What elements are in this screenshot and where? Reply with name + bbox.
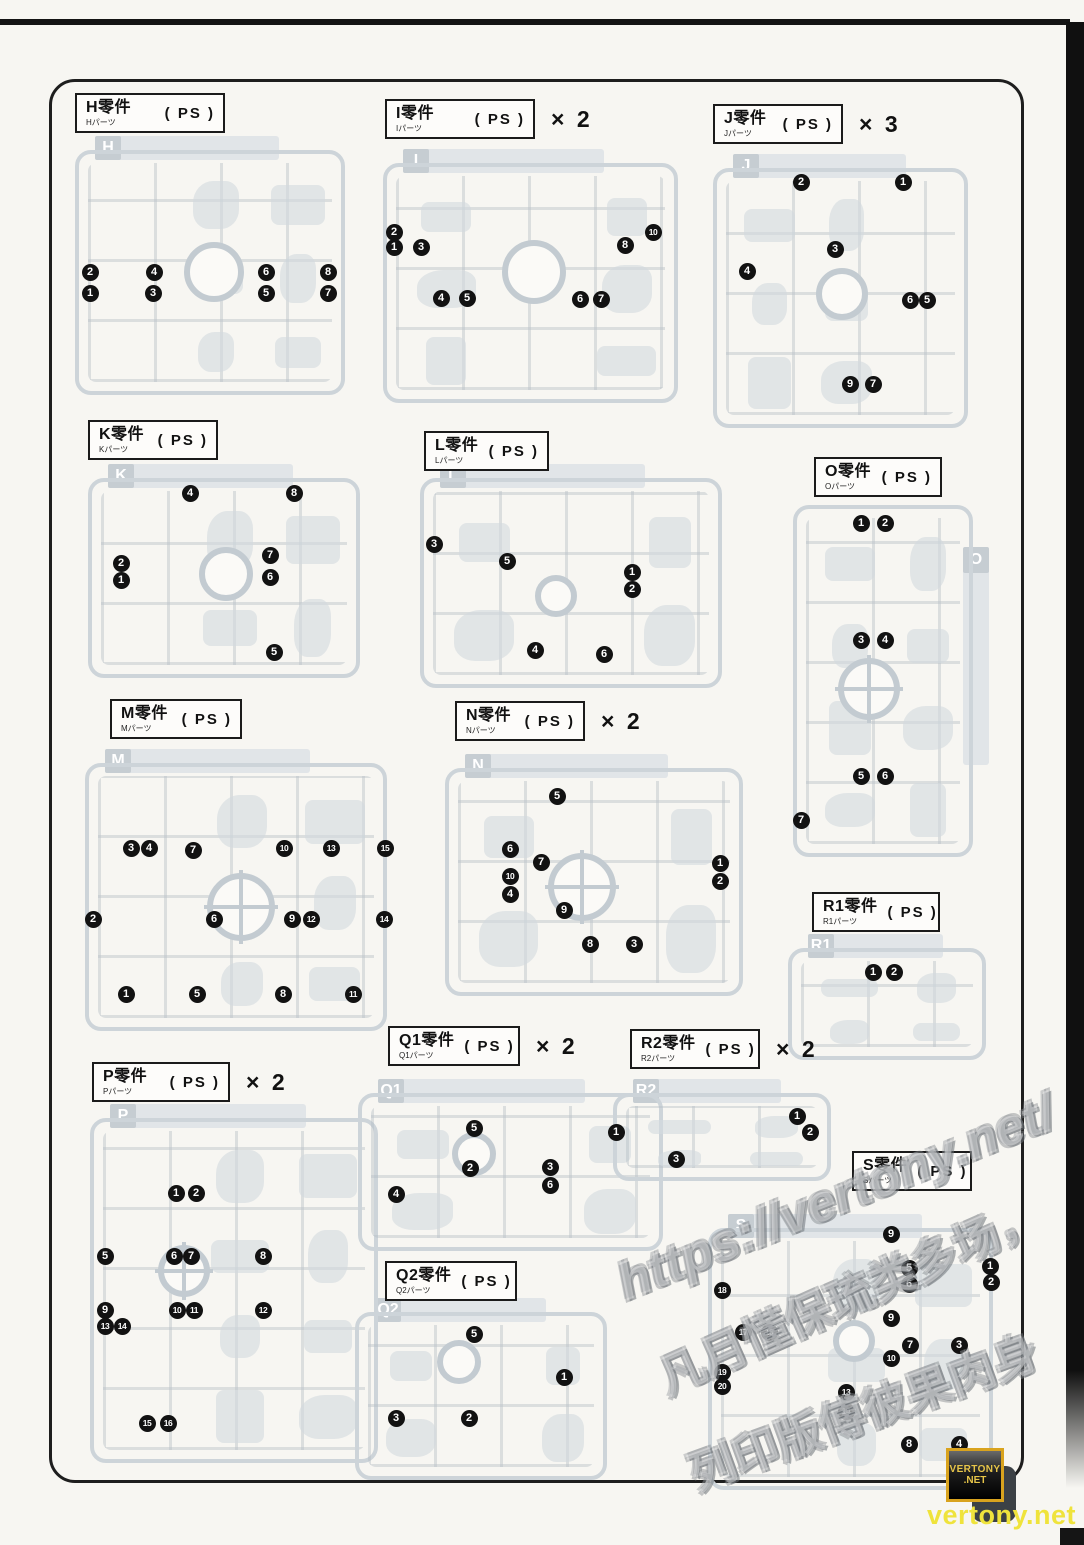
part-number-N-10: 10 (502, 868, 519, 885)
part-number-I-8: 8 (617, 237, 634, 254)
part-shape (607, 198, 648, 237)
part-number-P-8: 8 (255, 1248, 272, 1265)
part-label-text-N: N零件Nパーツ (466, 708, 511, 735)
part-shape (286, 516, 340, 564)
part-label-sub-P: Pパーツ (103, 1088, 147, 1096)
part-shape (304, 1320, 352, 1354)
part-label-text-Q2: Q2零件Q2パーツ (396, 1268, 451, 1295)
part-label-M: M零件Mパーツ( PS ) (110, 699, 242, 739)
runner-M: M347101315269121415811 (85, 763, 387, 1031)
part-label-text-K: K零件Kパーツ (99, 427, 144, 454)
part-number-H-8: 8 (320, 264, 337, 281)
part-number-R1-2: 2 (886, 964, 903, 981)
part-number-H-4: 4 (146, 264, 163, 281)
part-label-sub-R2: R2パーツ (641, 1055, 695, 1063)
part-number-K-2: 2 (113, 555, 130, 572)
part-number-Q1-5: 5 (466, 1120, 483, 1137)
part-label-title-K: K零件 (99, 427, 144, 443)
part-shape (275, 337, 320, 368)
part-shape (830, 1020, 869, 1044)
part-number-P-9: 9 (97, 1302, 114, 1319)
part-shape (648, 1120, 711, 1133)
part-number-N-3: 3 (626, 936, 643, 953)
runner-center-ring-L (535, 575, 577, 617)
part-number-K-5: 5 (266, 644, 283, 661)
part-number-P-13: 13 (97, 1318, 114, 1335)
part-shape (193, 181, 238, 230)
part-label-row-Q2: Q2零件Q2パーツ( PS ) (385, 1261, 517, 1301)
part-shape (308, 1230, 348, 1283)
vertony-badge-text: VERTONY (950, 1464, 1001, 1475)
part-number-J-9: 9 (842, 376, 859, 393)
part-label-row-M: M零件Mパーツ( PS ) (110, 699, 242, 739)
part-number-N-6: 6 (502, 841, 519, 858)
part-label-material-L: ( PS ) (479, 443, 539, 460)
part-number-M-11: 11 (345, 986, 362, 1003)
runner-R1: R112 (788, 948, 986, 1060)
part-label-sub-Q2: Q2パーツ (396, 1287, 451, 1295)
part-number-K-8: 8 (286, 485, 303, 502)
part-label-sub-Q1: Q1パーツ (399, 1052, 454, 1060)
part-number-J-6: 6 (902, 292, 919, 309)
part-label-sub-K: Kパーツ (99, 446, 144, 454)
part-number-K-4: 4 (182, 485, 199, 502)
runner-center-ring-O (838, 658, 900, 720)
part-label-material-M: ( PS ) (172, 711, 232, 728)
part-number-I-1: 1 (386, 239, 403, 256)
runner-K: K4821765 (88, 478, 360, 678)
part-shape (597, 346, 656, 376)
part-label-row-H: H零件Hパーツ( PS ) (75, 93, 225, 133)
part-number-M-15: 15 (377, 840, 394, 857)
part-label-row-Q1: Q1零件Q1パーツ( PS )× 2 (388, 1026, 578, 1066)
part-number-L-2: 2 (624, 581, 641, 598)
part-label-sub-M: Mパーツ (121, 725, 168, 733)
part-number-P-1: 1 (168, 1185, 185, 1202)
part-shape (421, 202, 471, 232)
part-number-S-8: 8 (901, 1436, 918, 1453)
runner-center-ring-Q2 (437, 1340, 481, 1384)
part-number-M-5: 5 (189, 986, 206, 1003)
part-number-P-5: 5 (97, 1248, 114, 1265)
part-shape (314, 876, 356, 930)
part-shape (280, 254, 317, 303)
part-number-I-2: 2 (386, 224, 403, 241)
part-label-material-Q2: ( PS ) (451, 1273, 511, 1290)
part-shape (649, 517, 691, 567)
part-label-I: I零件Iパーツ( PS ) (385, 99, 535, 139)
part-number-M-10: 10 (276, 840, 293, 857)
part-label-text-H: H零件Hパーツ (86, 100, 131, 127)
part-number-Q2-3: 3 (388, 1410, 405, 1427)
part-number-I-4: 4 (433, 290, 450, 307)
part-shape (748, 357, 790, 409)
part-label-material-H: ( PS ) (155, 105, 215, 122)
part-label-row-N: N零件Nパーツ( PS )× 2 (455, 701, 643, 741)
part-multiplier-J: × 3 (859, 111, 901, 138)
part-shape (666, 905, 716, 972)
part-number-Q2-1: 1 (556, 1369, 573, 1386)
part-number-P-7: 7 (183, 1248, 200, 1265)
part-shape (910, 537, 945, 591)
part-shape (917, 973, 956, 1002)
scan-edge-right (1066, 22, 1084, 1488)
part-number-R2-2: 2 (802, 1124, 819, 1141)
part-label-text-Q1: Q1零件Q1パーツ (399, 1033, 454, 1060)
part-label-sub-I: Iパーツ (396, 125, 434, 133)
part-shape (671, 809, 712, 864)
runner-center-ring-H (184, 242, 244, 302)
part-number-J-5: 5 (919, 292, 936, 309)
part-shape (305, 800, 365, 844)
part-label-text-L: L零件Lパーツ (435, 438, 478, 465)
part-shape (217, 795, 268, 849)
part-label-material-I: ( PS ) (465, 111, 525, 128)
part-number-P-16: 16 (160, 1415, 177, 1432)
part-shape (542, 1414, 584, 1462)
part-number-J-3: 3 (827, 241, 844, 258)
part-number-P-10: 10 (169, 1302, 186, 1319)
part-multiplier-Q1: × 2 (536, 1033, 578, 1060)
part-number-L-6: 6 (596, 646, 613, 663)
part-shape (910, 783, 945, 837)
part-label-O: O零件Oパーツ( PS ) (814, 457, 942, 497)
part-label-row-J: J零件Jパーツ( PS )× 3 (713, 104, 901, 144)
part-multiplier-I: × 2 (551, 106, 593, 133)
part-number-O-1: 1 (853, 515, 870, 532)
part-label-row-R1: R1零件R1パーツ( PS ) (812, 892, 940, 932)
part-shape (390, 1351, 432, 1381)
part-label-title-O: O零件 (825, 464, 871, 480)
part-number-J-4: 4 (739, 263, 756, 280)
part-number-P-12: 12 (255, 1302, 272, 1319)
part-label-material-J: ( PS ) (773, 116, 833, 133)
part-number-I-6: 6 (572, 291, 589, 308)
part-label-title-R2: R2零件 (641, 1036, 695, 1052)
part-number-M-1: 1 (118, 986, 135, 1003)
part-label-R1: R1零件R1パーツ( PS ) (812, 892, 940, 932)
part-number-L-5: 5 (499, 553, 516, 570)
part-number-Q1-3: 3 (542, 1159, 559, 1176)
part-number-O-6: 6 (877, 768, 894, 785)
part-label-text-O: O零件Oパーツ (825, 464, 871, 491)
part-shape (203, 610, 257, 647)
part-label-text-M: M零件Mパーツ (121, 706, 168, 733)
part-label-H: H零件Hパーツ( PS ) (75, 93, 225, 133)
part-number-I-10: 10 (645, 224, 662, 241)
part-number-Q2-5: 5 (466, 1326, 483, 1343)
part-number-I-5: 5 (459, 290, 476, 307)
part-label-sub-R1: R1パーツ (823, 918, 877, 926)
part-number-M-8: 8 (275, 986, 292, 1003)
part-label-R2: R2零件R2パーツ( PS ) (630, 1029, 760, 1069)
runner-center-ring-I (502, 240, 566, 304)
part-number-I-7: 7 (593, 291, 610, 308)
part-number-O-4: 4 (877, 632, 894, 649)
part-shape (752, 283, 787, 325)
part-label-text-R2: R2零件R2パーツ (641, 1036, 695, 1063)
part-shape (602, 265, 652, 313)
part-shape (198, 332, 235, 372)
runner-I: I2131084567 (383, 163, 678, 403)
part-label-material-P: ( PS ) (160, 1074, 220, 1091)
runner-O: O1234567 (793, 505, 973, 857)
part-shape (825, 547, 876, 581)
part-number-N-7: 7 (533, 854, 550, 871)
part-number-Q1-6: 6 (542, 1177, 559, 1194)
part-number-O-7: 7 (793, 812, 810, 829)
part-number-N-2: 2 (712, 873, 729, 890)
part-shape (913, 1023, 961, 1041)
part-label-title-P: P零件 (103, 1069, 147, 1085)
part-number-M-7: 7 (185, 842, 202, 859)
part-shape (584, 1189, 636, 1233)
runner-center-ring-J (816, 268, 868, 320)
part-number-P-6: 6 (166, 1248, 183, 1265)
part-label-material-N: ( PS ) (515, 713, 575, 730)
part-multiplier-R2: × 2 (776, 1036, 818, 1063)
part-number-M-3: 3 (123, 840, 140, 857)
part-shape (744, 209, 794, 242)
part-number-Q2-2: 2 (461, 1410, 478, 1427)
part-shape (644, 605, 695, 666)
part-label-row-K: K零件Kパーツ( PS ) (88, 420, 218, 460)
part-number-O-5: 5 (853, 768, 870, 785)
part-label-title-J: J零件 (724, 111, 766, 127)
part-number-N-1: 1 (712, 855, 729, 872)
part-label-material-R1: ( PS ) (877, 904, 937, 921)
part-number-M-14: 14 (376, 911, 393, 928)
part-number-Q1-2: 2 (462, 1160, 479, 1177)
part-shape (479, 911, 538, 966)
part-number-I-3: 3 (413, 239, 430, 256)
part-label-row-O: O零件Oパーツ( PS ) (814, 457, 942, 497)
part-number-M-6: 6 (206, 911, 223, 928)
part-label-L: L零件Lパーツ( PS ) (424, 431, 549, 471)
scan-edge-top (0, 19, 1070, 25)
part-shape (821, 979, 878, 997)
part-number-L-1: 1 (624, 564, 641, 581)
part-label-title-I: I零件 (396, 106, 434, 122)
part-label-title-Q1: Q1零件 (399, 1033, 454, 1049)
part-shape (271, 185, 324, 225)
part-number-P-14: 14 (114, 1318, 131, 1335)
part-label-title-R1: R1零件 (823, 899, 877, 915)
part-label-sub-O: Oパーツ (825, 483, 871, 491)
part-label-title-Q2: Q2零件 (396, 1268, 451, 1284)
part-number-J-1: 1 (895, 174, 912, 191)
part-shape (397, 1130, 449, 1158)
part-number-R2-1: 1 (789, 1108, 806, 1125)
runner-N: N56710412983 (445, 768, 743, 996)
part-number-H-7: 7 (320, 285, 337, 302)
part-number-J-2: 2 (793, 174, 810, 191)
part-label-text-J: J零件Jパーツ (724, 111, 766, 138)
part-shape (221, 962, 263, 1006)
manual-page: H零件Hパーツ( PS )H24681357I零件Iパーツ( PS )× 2I2… (0, 0, 1084, 1545)
vertony-badge-text-2: .NET (964, 1475, 987, 1486)
part-number-P-11: 11 (186, 1302, 203, 1319)
part-shape (750, 1152, 803, 1165)
part-shape (299, 1154, 356, 1197)
part-number-N-5: 5 (549, 788, 566, 805)
part-label-material-R2: ( PS ) (695, 1041, 755, 1058)
part-label-sub-H: Hパーツ (86, 119, 131, 127)
part-label-row-P: P零件Pパーツ( PS )× 2 (92, 1062, 288, 1102)
runner-center-ring-M (207, 873, 275, 941)
runner-J: J21346597 (713, 168, 968, 428)
runner-H: H24681357 (75, 150, 345, 395)
part-label-title-H: H零件 (86, 100, 131, 116)
part-label-material-O: ( PS ) (872, 469, 932, 486)
part-multiplier-N: × 2 (601, 708, 643, 735)
part-label-text-P: P零件Pパーツ (103, 1069, 147, 1096)
part-shape (216, 1150, 264, 1203)
part-label-J: J零件Jパーツ( PS ) (713, 104, 843, 144)
part-number-Q1-1: 1 (608, 1124, 625, 1141)
part-number-N-4: 4 (502, 886, 519, 903)
part-number-K-1: 1 (113, 572, 130, 589)
part-number-L-4: 4 (527, 642, 544, 659)
part-multiplier-P: × 2 (246, 1069, 288, 1096)
part-number-H-1: 1 (82, 285, 99, 302)
part-label-row-R2: R2零件R2パーツ( PS )× 2 (630, 1029, 818, 1069)
part-number-M-12: 12 (303, 911, 320, 928)
part-number-O-2: 2 (877, 515, 894, 532)
part-number-S-2: 2 (983, 1274, 1000, 1291)
part-label-Q2: Q2零件Q2パーツ( PS ) (385, 1261, 517, 1301)
runner-P: P125678910111213141516 (90, 1118, 378, 1463)
part-number-J-7: 7 (865, 376, 882, 393)
part-shape (216, 1390, 264, 1443)
part-label-material-Q1: ( PS ) (454, 1038, 514, 1055)
runner-R2: R2123 (613, 1093, 831, 1181)
part-label-title-N: N零件 (466, 708, 511, 724)
part-number-M-2: 2 (85, 911, 102, 928)
part-number-K-6: 6 (262, 569, 279, 586)
part-number-S-7: 7 (902, 1337, 919, 1354)
part-number-M-13: 13 (323, 840, 340, 857)
runner-Q2: Q25132 (355, 1312, 607, 1480)
part-number-Q1-4: 4 (388, 1186, 405, 1203)
part-number-R1-1: 1 (865, 964, 882, 981)
part-label-Q1: Q1零件Q1パーツ( PS ) (388, 1026, 520, 1066)
part-shape (426, 337, 467, 385)
part-shape (299, 1395, 356, 1438)
part-number-N-8: 8 (582, 936, 599, 953)
part-shape (220, 1315, 260, 1358)
part-number-H-2: 2 (82, 264, 99, 281)
part-number-P-2: 2 (188, 1185, 205, 1202)
part-number-M-9: 9 (284, 911, 301, 928)
part-number-H-3: 3 (145, 285, 162, 302)
part-label-sub-L: Lパーツ (435, 457, 478, 465)
part-label-sub-N: Nパーツ (466, 727, 511, 735)
part-number-O-3: 3 (853, 632, 870, 649)
part-label-N: N零件Nパーツ( PS ) (455, 701, 585, 741)
part-label-material-K: ( PS ) (148, 432, 208, 449)
part-shape (903, 706, 954, 750)
part-shape (907, 629, 950, 663)
part-number-S-18: 18 (714, 1282, 731, 1299)
part-label-title-M: M零件 (121, 706, 168, 722)
part-number-R2-3: 3 (668, 1151, 685, 1168)
part-label-row-L: L零件Lパーツ( PS ) (424, 431, 549, 471)
vertony-badge: VERTONY .NET (946, 1448, 1004, 1502)
part-number-P-15: 15 (139, 1415, 156, 1432)
part-label-text-I: I零件Iパーツ (396, 106, 434, 133)
part-label-text-R1: R1零件R1パーツ (823, 899, 877, 926)
part-label-sub-J: Jパーツ (724, 130, 766, 138)
part-label-title-L: L零件 (435, 438, 478, 454)
part-label-K: K零件Kパーツ( PS ) (88, 420, 218, 460)
part-number-L-3: 3 (426, 536, 443, 553)
part-number-H-6: 6 (258, 264, 275, 281)
footer-site-url: vertony.net (927, 1500, 1076, 1531)
part-shape (454, 610, 514, 660)
part-number-K-7: 7 (262, 547, 279, 564)
part-number-M-4: 4 (141, 840, 158, 857)
runner-center-ring-K (199, 547, 253, 601)
part-label-P: P零件Pパーツ( PS ) (92, 1062, 230, 1102)
part-label-row-I: I零件Iパーツ( PS )× 2 (385, 99, 593, 139)
part-number-N-9: 9 (556, 902, 573, 919)
runner-L: L351246 (420, 478, 722, 688)
part-shape (825, 793, 876, 827)
part-shape (294, 599, 331, 657)
part-number-H-5: 5 (258, 285, 275, 302)
